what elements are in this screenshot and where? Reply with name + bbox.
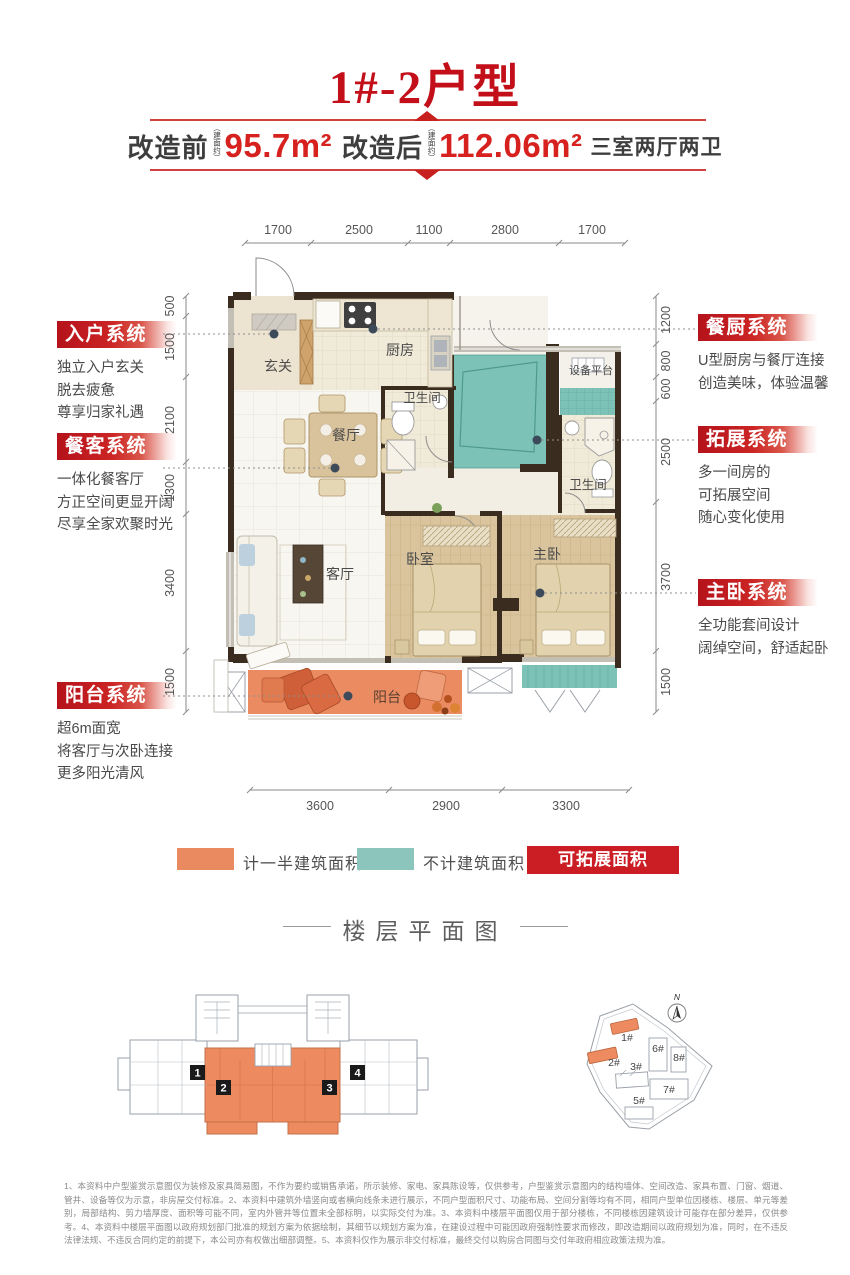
leader-dot-balcony — [344, 692, 353, 701]
legend-half-label: 计一半建筑面积 — [243, 850, 362, 874]
site-building-label: 2# — [608, 1057, 620, 1069]
site-building-label: 8# — [673, 1052, 685, 1064]
dim-right: 600 — [659, 379, 673, 400]
site-building-label: 5# — [633, 1095, 645, 1107]
dim-bottom: 3300 — [552, 799, 580, 813]
room-balcony: 阳台 — [373, 689, 401, 705]
dim-left: 1500 — [163, 668, 177, 696]
room-bath1: 卫生间 — [403, 391, 441, 405]
site-building-label: 3# — [630, 1061, 642, 1073]
room-equipment: 设备平台 — [569, 363, 613, 377]
leader-dot-extend — [533, 436, 542, 445]
leader-dot-master — [536, 589, 545, 598]
room-living: 客厅 — [326, 566, 354, 582]
dim-top: 1700 — [578, 223, 606, 237]
dim-right: 800 — [659, 351, 673, 372]
site-plan: 1# 2# 3# 5# 6# 7# 8# N — [587, 992, 712, 1129]
unit-number: 2 — [220, 1083, 226, 1095]
floor-plate-plan: 1 2 3 4 — [118, 995, 428, 1134]
leader-dot-kitchen — [369, 325, 378, 334]
leader-dot-dining — [331, 464, 340, 473]
title-dash-left — [283, 926, 331, 927]
room-dining: 餐厅 — [332, 427, 360, 443]
unit-number: 1 — [194, 1068, 200, 1080]
room-bath2: 卫生间 — [569, 478, 607, 492]
dim-left: 1500 — [163, 333, 177, 361]
dim-left: 3400 — [163, 569, 177, 597]
legend-swatch-half — [177, 848, 234, 870]
dim-right: 1500 — [659, 668, 673, 696]
dim-top: 2800 — [491, 223, 519, 237]
dim-left: 2100 — [163, 406, 177, 434]
floorplan-drawing: 玄关 厨房 卫生间 设备平台 餐厅 客厅 卧室 主卧 卫生间 阳台 — [0, 0, 850, 1275]
legend-expandable-badge: 可拓展面积 16.36m² — [527, 846, 679, 874]
dim-right: 3700 — [659, 563, 673, 591]
room-master: 主卧 — [533, 546, 561, 562]
room-entry: 玄关 — [264, 358, 292, 374]
floor-plan-section-title: 楼层平面图 — [0, 912, 850, 946]
dim-left: 500 — [163, 296, 177, 317]
unit-number: 3 — [326, 1083, 332, 1095]
room-kitchen: 厨房 — [386, 342, 414, 358]
unit-number: 4 — [354, 1068, 361, 1080]
dim-bottom: 2900 — [432, 799, 460, 813]
dim-bottom: 3600 — [306, 799, 334, 813]
dim-top: 1700 — [264, 223, 292, 237]
title-dash-right — [520, 926, 568, 927]
site-building-label: 7# — [663, 1084, 675, 1096]
compass-icon: N — [668, 992, 686, 1022]
dim-left: 1300 — [163, 474, 177, 502]
room-bedroom: 卧室 — [406, 551, 434, 567]
dim-right: 2500 — [659, 438, 673, 466]
dim-top: 1100 — [416, 223, 443, 237]
legend-excluded-label: 不计建筑面积 — [423, 850, 525, 874]
legend-swatch-excluded — [357, 848, 414, 870]
dim-top: 2500 — [345, 223, 373, 237]
dim-right: 1200 — [659, 306, 673, 334]
leader-dot-entry — [270, 330, 279, 339]
disclaimer-text: 1、本资料中户型鉴赏示意图仅为装修及家具简易图，不作为要约或销售承诺，所示装修、… — [64, 1180, 788, 1248]
site-building-label: 1# — [621, 1032, 633, 1044]
site-building-label: 6# — [652, 1043, 664, 1055]
compass-n: N — [674, 992, 681, 1002]
